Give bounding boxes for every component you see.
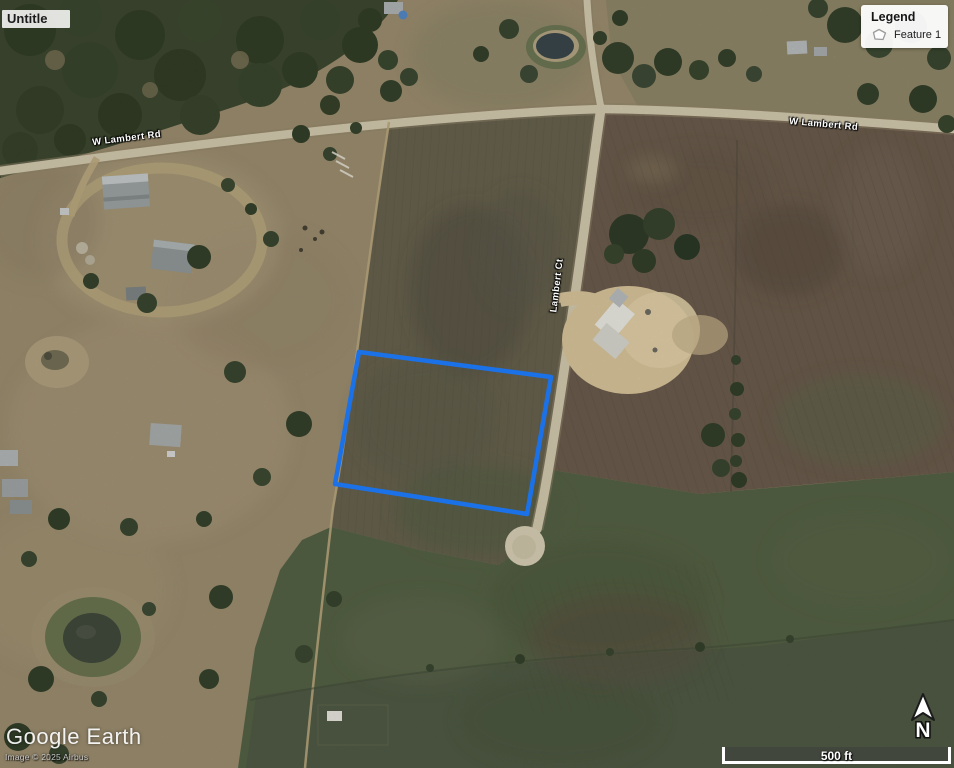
- north-label: N: [905, 721, 941, 741]
- north-arrow[interactable]: N: [905, 692, 941, 741]
- scale-bar: 500 ft: [722, 747, 951, 764]
- legend-item-feature-1[interactable]: Feature 1: [871, 28, 948, 41]
- legend-panel: Legend Feature 1: [861, 5, 948, 48]
- scale-bar-label: 500 ft: [821, 749, 852, 763]
- legend-item-label: Feature 1: [894, 29, 941, 41]
- satellite-imagery: [0, 0, 954, 768]
- legend-title: Legend: [871, 10, 948, 24]
- google-earth-viewport[interactable]: W Lambert Rd W Lambert Rd Lambert Ct Unt…: [0, 0, 954, 768]
- google-earth-logo: Google Earth: [6, 724, 142, 750]
- polygon-feature-icon: [871, 28, 888, 41]
- imagery-copyright: Image © 2025 Airbus: [5, 752, 88, 762]
- map-title: Untitle: [2, 10, 70, 28]
